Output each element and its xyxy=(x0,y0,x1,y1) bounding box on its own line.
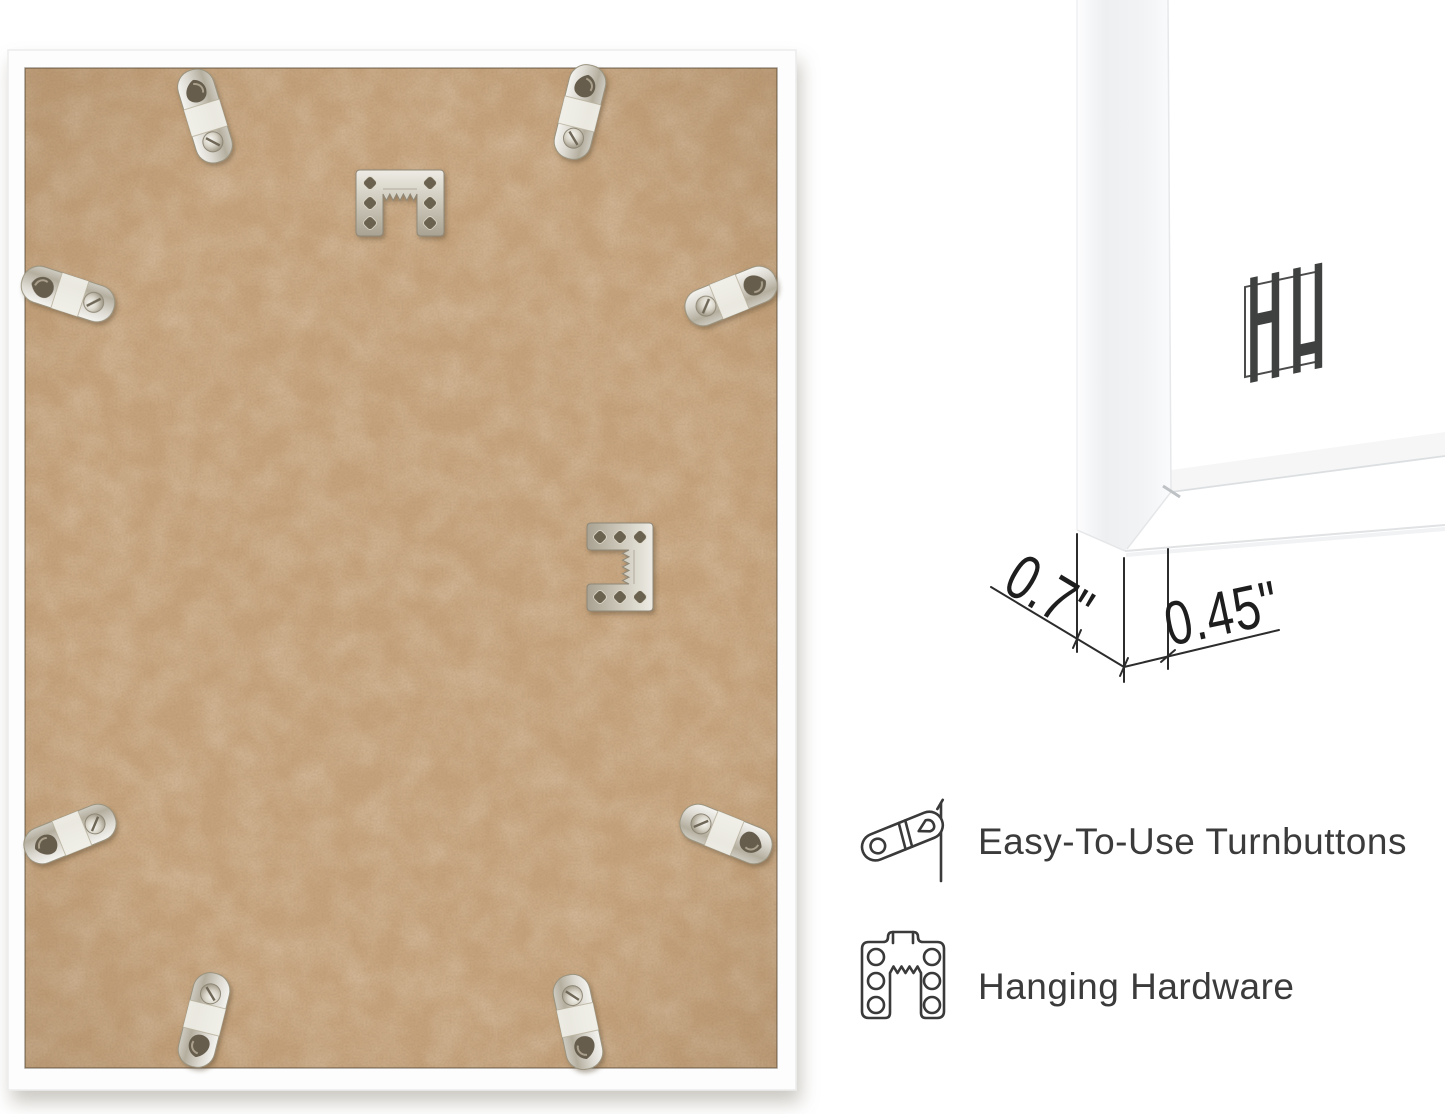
feature-label-hanging-hardware: Hanging Hardware xyxy=(978,966,1295,1007)
feature-label-turnbuttons: Easy-To-Use Turnbuttons xyxy=(978,821,1407,862)
backing-board xyxy=(25,68,777,1068)
feature-callouts: Easy-To-Use Turnbuttons Hanging Hardware xyxy=(856,800,1407,1018)
corner-detail: 0.7" 0.45" xyxy=(991,0,1445,682)
frame-side-face xyxy=(1077,0,1171,551)
width-dimension-label: 0.45" xyxy=(1158,567,1285,659)
turnbutton-icon xyxy=(856,800,955,881)
hanging-hardware-icon xyxy=(862,932,944,1018)
frame-back-photo xyxy=(8,50,796,1090)
product-infographic: 0.7" 0.45" Easy-To-Use Turnbuttons xyxy=(0,0,1445,1114)
depth-dimension-label: 0.7" xyxy=(993,541,1105,647)
